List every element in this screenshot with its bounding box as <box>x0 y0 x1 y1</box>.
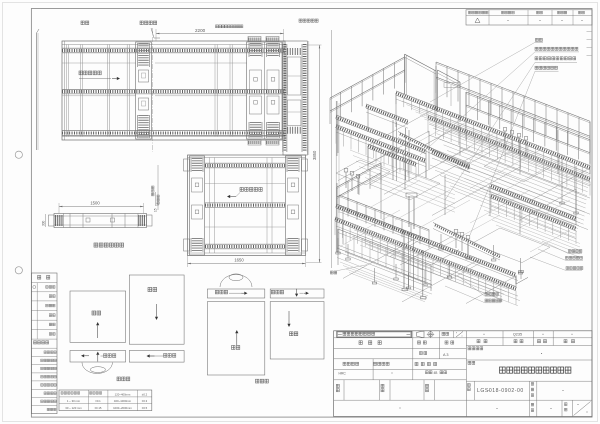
svg-text:1500: 1500 <box>90 201 100 206</box>
svg-text:3850: 3850 <box>312 150 317 160</box>
svg-text:±0.5: ±0.5 <box>142 406 148 410</box>
svg-text:120~400mm: 120~400mm <box>115 392 131 396</box>
svg-text:LGS018-0902-00: LGS018-0902-00 <box>477 388 524 394</box>
svg-text:30 ~ 120 mm: 30 ~ 120 mm <box>65 406 82 410</box>
svg-text:±0.15: ±0.15 <box>95 406 102 410</box>
svg-text:A 3: A 3 <box>443 353 449 357</box>
svg-text:300: 300 <box>42 220 46 226</box>
svg-text:2200: 2200 <box>195 28 206 33</box>
svg-text:15: 15 <box>154 208 158 212</box>
svg-text:1000~2000mm: 1000~2000mm <box>113 406 132 410</box>
svg-text:Q235: Q235 <box>513 333 522 337</box>
svg-text:±0.3: ±0.3 <box>142 399 148 403</box>
svg-text:HRC: HRC <box>339 372 347 376</box>
svg-text:±0.2: ±0.2 <box>142 392 148 396</box>
svg-text:4B: 4B <box>434 371 438 375</box>
svg-text:400~1000mm: 400~1000mm <box>114 399 132 403</box>
svg-text:1 ~ 30 mm: 1 ~ 30 mm <box>67 399 81 403</box>
svg-text:1650: 1650 <box>234 258 244 263</box>
svg-text:±0.1: ±0.1 <box>95 399 101 403</box>
